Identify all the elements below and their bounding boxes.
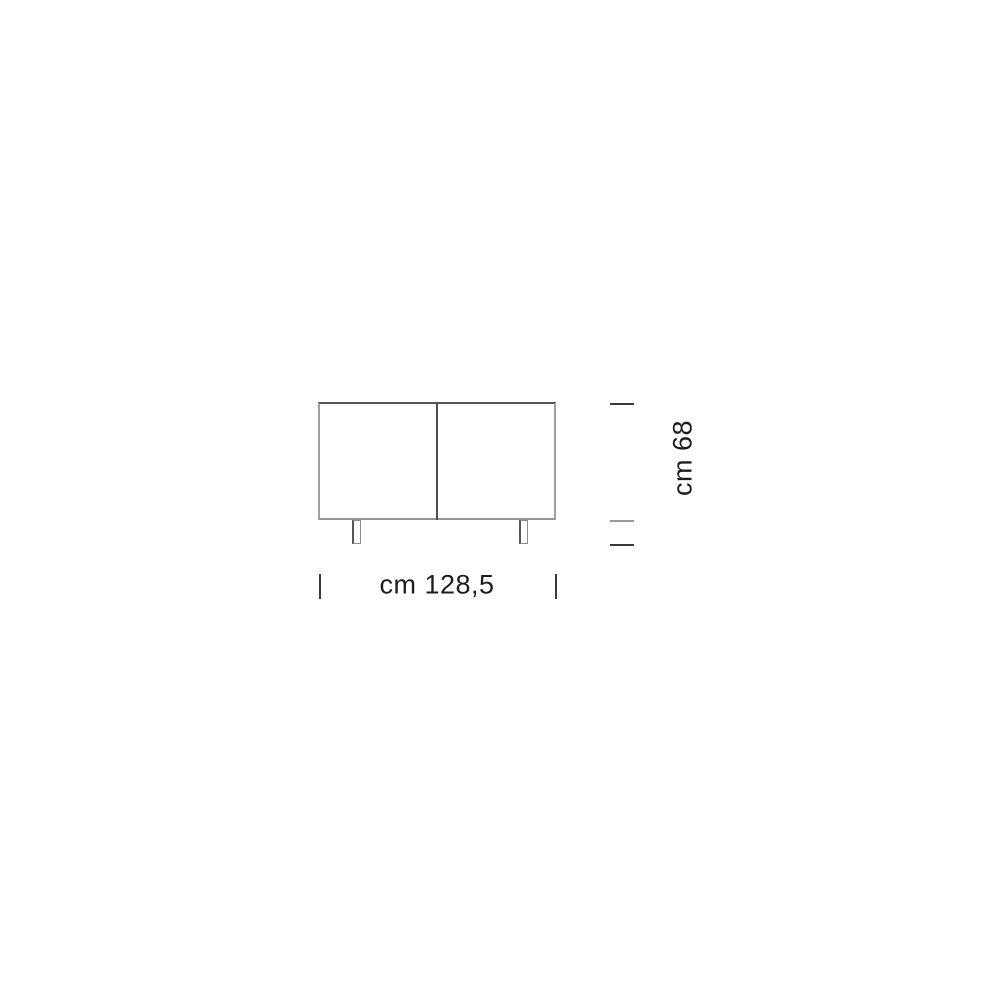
height-tick-top xyxy=(610,403,634,405)
height-tick-floor xyxy=(610,544,634,546)
cabinet-right-leg xyxy=(519,520,528,544)
width-tick-left xyxy=(319,574,321,599)
width-tick-right xyxy=(555,574,557,599)
height-tick-body-bottom xyxy=(610,520,634,522)
width-dimension-label: cm 128,5 xyxy=(379,570,494,601)
door-divider-line xyxy=(436,402,438,520)
height-dimension-label: cm 68 xyxy=(668,420,699,496)
cabinet-left-leg xyxy=(352,520,361,544)
dimension-diagram: cm 68 cm 128,5 xyxy=(0,0,1000,1000)
